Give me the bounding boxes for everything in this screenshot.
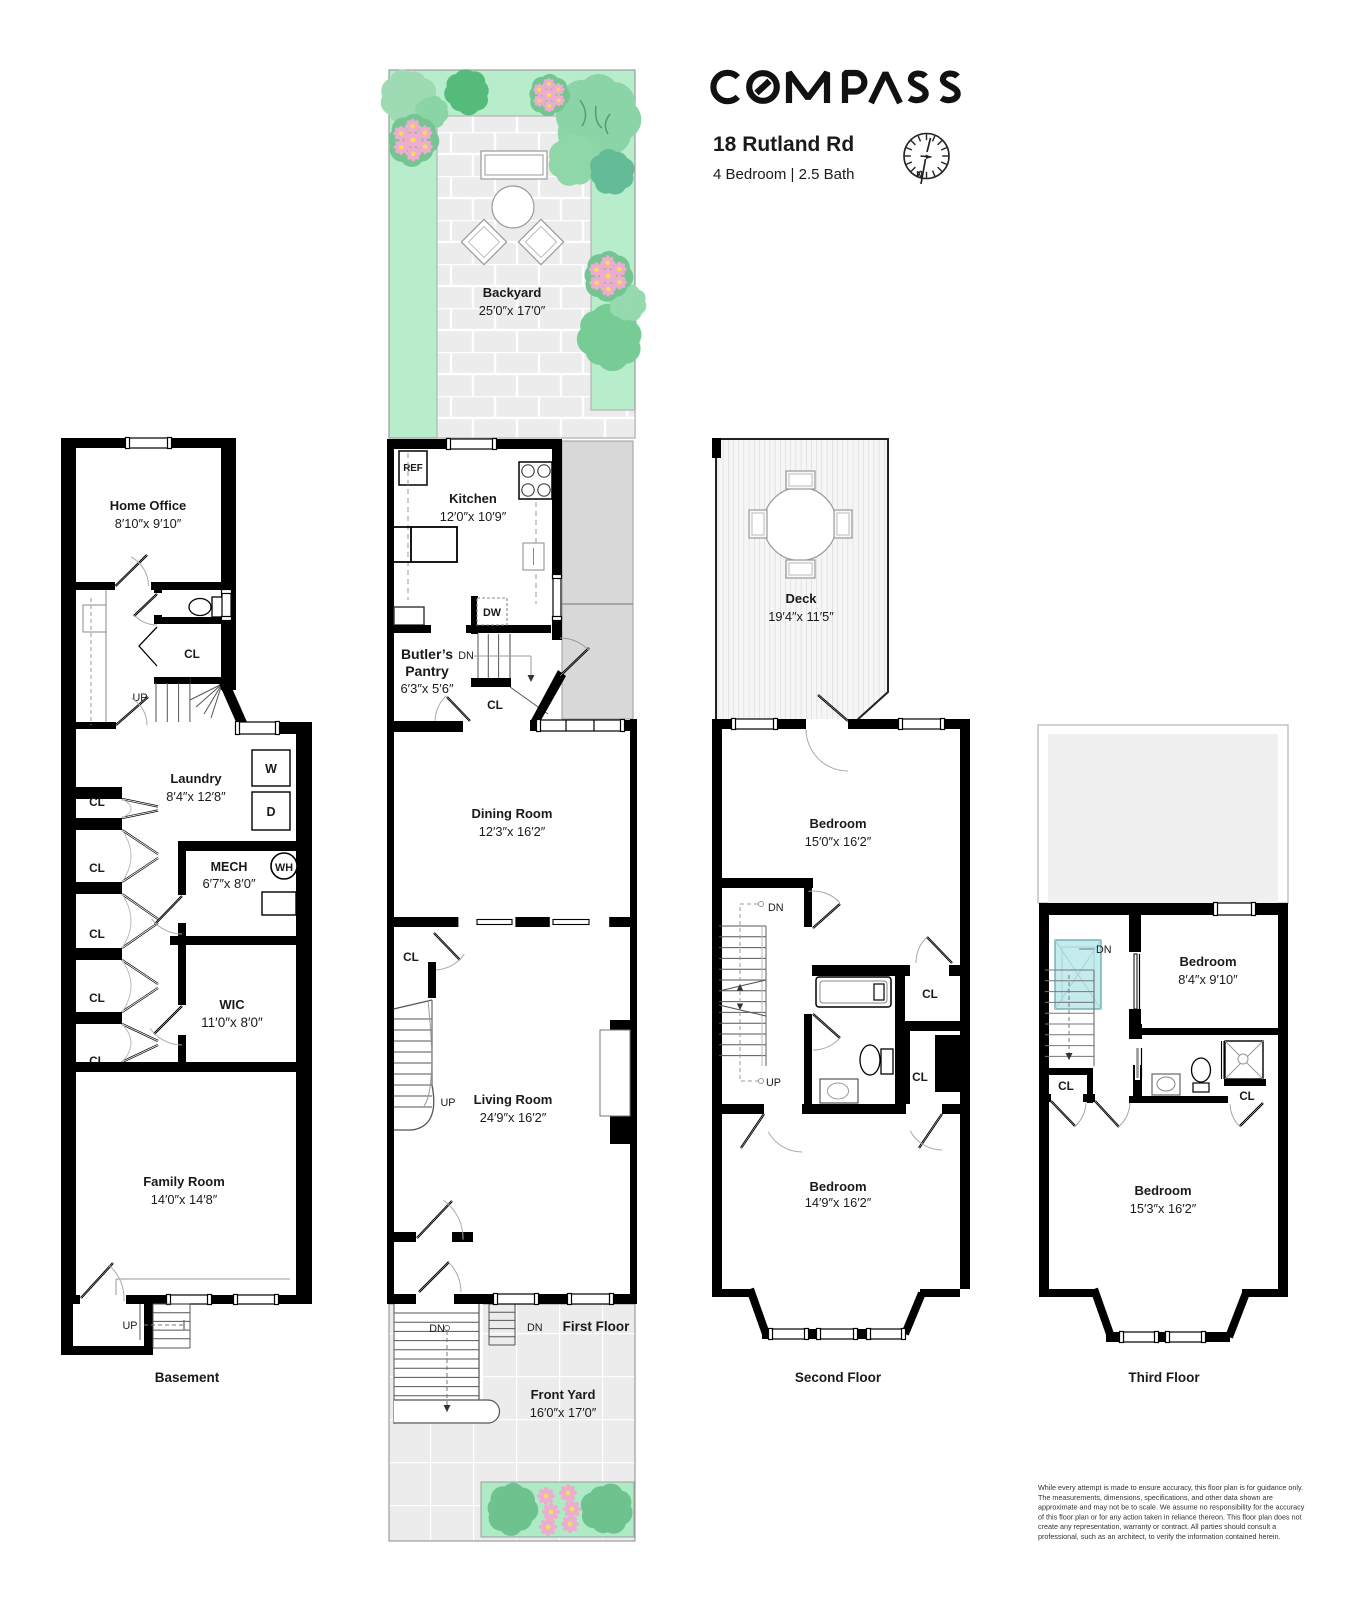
svg-text:25′0″x 17′0″: 25′0″x 17′0″ bbox=[479, 303, 546, 318]
svg-text:12′0″x 10′9″: 12′0″x 10′9″ bbox=[440, 509, 507, 524]
svg-text:8′4″x 9′10″: 8′4″x 9′10″ bbox=[1178, 972, 1238, 987]
svg-text:DN: DN bbox=[429, 1323, 445, 1335]
svg-text:W: W bbox=[265, 762, 277, 776]
svg-text:N: N bbox=[916, 170, 923, 180]
svg-text:8′4″x 12′8″: 8′4″x 12′8″ bbox=[166, 789, 226, 804]
svg-text:DW: DW bbox=[483, 607, 502, 619]
svg-text:REF: REF bbox=[403, 463, 423, 474]
svg-text:UP: UP bbox=[441, 1097, 456, 1109]
svg-text:Bedroom: Bedroom bbox=[809, 1179, 866, 1194]
svg-text:Bedroom: Bedroom bbox=[1179, 954, 1236, 969]
svg-text:CL: CL bbox=[89, 991, 105, 1005]
svg-text:Family Room: Family Room bbox=[143, 1174, 225, 1189]
svg-text:CL: CL bbox=[1058, 1079, 1074, 1093]
svg-text:Bedroom: Bedroom bbox=[1134, 1183, 1191, 1198]
svg-text:11′0″x 8′0″: 11′0″x 8′0″ bbox=[201, 1015, 263, 1030]
svg-text:UP: UP bbox=[123, 1320, 138, 1332]
svg-text:Second Floor: Second Floor bbox=[795, 1370, 882, 1385]
svg-text:CL: CL bbox=[922, 987, 938, 1001]
svg-text:First Floor: First Floor bbox=[563, 1319, 630, 1334]
svg-text:14′9″x 16′2″: 14′9″x 16′2″ bbox=[805, 1195, 872, 1210]
svg-text:Butler’s: Butler’s bbox=[401, 646, 453, 662]
svg-text:WH: WH bbox=[275, 862, 293, 874]
svg-text:16′0″x 17′0″: 16′0″x 17′0″ bbox=[530, 1405, 597, 1420]
svg-text:CL: CL bbox=[184, 647, 200, 661]
svg-text:15′0″x 16′2″: 15′0″x 16′2″ bbox=[805, 834, 872, 849]
svg-text:create any representation, war: create any representation, warranty or c… bbox=[1038, 1522, 1276, 1531]
svg-text:15′3″x 16′2″: 15′3″x 16′2″ bbox=[1130, 1201, 1197, 1216]
svg-text:Basement: Basement bbox=[155, 1370, 220, 1385]
svg-text:Third Floor: Third Floor bbox=[1128, 1370, 1200, 1385]
svg-text:19′4″x 11′5″: 19′4″x 11′5″ bbox=[768, 609, 834, 624]
svg-text:CL: CL bbox=[1239, 1091, 1254, 1103]
svg-text:CL: CL bbox=[89, 927, 105, 941]
svg-text:Home Office: Home Office bbox=[110, 498, 187, 513]
svg-text:14′0″x 14′8″: 14′0″x 14′8″ bbox=[151, 1192, 218, 1207]
svg-text:CL: CL bbox=[487, 698, 503, 712]
svg-text:12′3″x 16′2″: 12′3″x 16′2″ bbox=[479, 824, 546, 839]
svg-text:Front Yard: Front Yard bbox=[531, 1387, 596, 1402]
svg-text:of this floor plan or for any: of this floor plan or for any action tak… bbox=[1038, 1512, 1302, 1521]
svg-text:Backyard: Backyard bbox=[483, 285, 542, 300]
svg-text:approximate and may not be to: approximate and may not be to scale. We … bbox=[1038, 1503, 1305, 1512]
svg-text:8′10″x 9′10″: 8′10″x 9′10″ bbox=[115, 516, 182, 531]
svg-text:D: D bbox=[266, 805, 275, 819]
svg-text:24′9″x 16′2″: 24′9″x 16′2″ bbox=[480, 1110, 547, 1125]
svg-text:Bedroom: Bedroom bbox=[809, 816, 866, 831]
svg-text:Living Room: Living Room bbox=[474, 1092, 553, 1107]
svg-text:CL: CL bbox=[89, 795, 105, 809]
svg-text:18 Rutland Rd: 18 Rutland Rd bbox=[713, 133, 854, 156]
svg-text:Pantry: Pantry bbox=[405, 663, 449, 679]
svg-text:Dining Room: Dining Room bbox=[472, 806, 553, 821]
svg-text:Kitchen: Kitchen bbox=[449, 491, 497, 506]
svg-text:WIC: WIC bbox=[219, 997, 245, 1012]
svg-text:professional, such as an archi: professional, such as an architect, to v… bbox=[1038, 1532, 1281, 1541]
svg-text:CL: CL bbox=[912, 1070, 928, 1084]
svg-text:DN: DN bbox=[1096, 944, 1112, 956]
svg-text:MECH: MECH bbox=[211, 860, 248, 874]
svg-text:DN: DN bbox=[527, 1322, 543, 1334]
svg-text:DN: DN bbox=[768, 902, 784, 914]
svg-text:Laundry: Laundry bbox=[170, 771, 222, 786]
svg-text:CL: CL bbox=[89, 861, 105, 875]
svg-text:6′3″x 5′6″: 6′3″x 5′6″ bbox=[400, 681, 454, 696]
svg-text:UP: UP bbox=[766, 1077, 781, 1089]
svg-text:The measurements, dimensions,: The measurements, dimensions, specificat… bbox=[1038, 1493, 1273, 1502]
svg-text:4 Bedroom | 2.5 Bath: 4 Bedroom | 2.5 Bath bbox=[713, 166, 854, 183]
svg-text:While every attempt is made to: While every attempt is made to ensure ac… bbox=[1038, 1483, 1303, 1492]
svg-text:6′7″x 8′0″: 6′7″x 8′0″ bbox=[202, 876, 256, 891]
svg-text:CL: CL bbox=[403, 950, 419, 964]
svg-text:DN: DN bbox=[458, 650, 474, 662]
svg-text:Deck: Deck bbox=[785, 591, 817, 606]
